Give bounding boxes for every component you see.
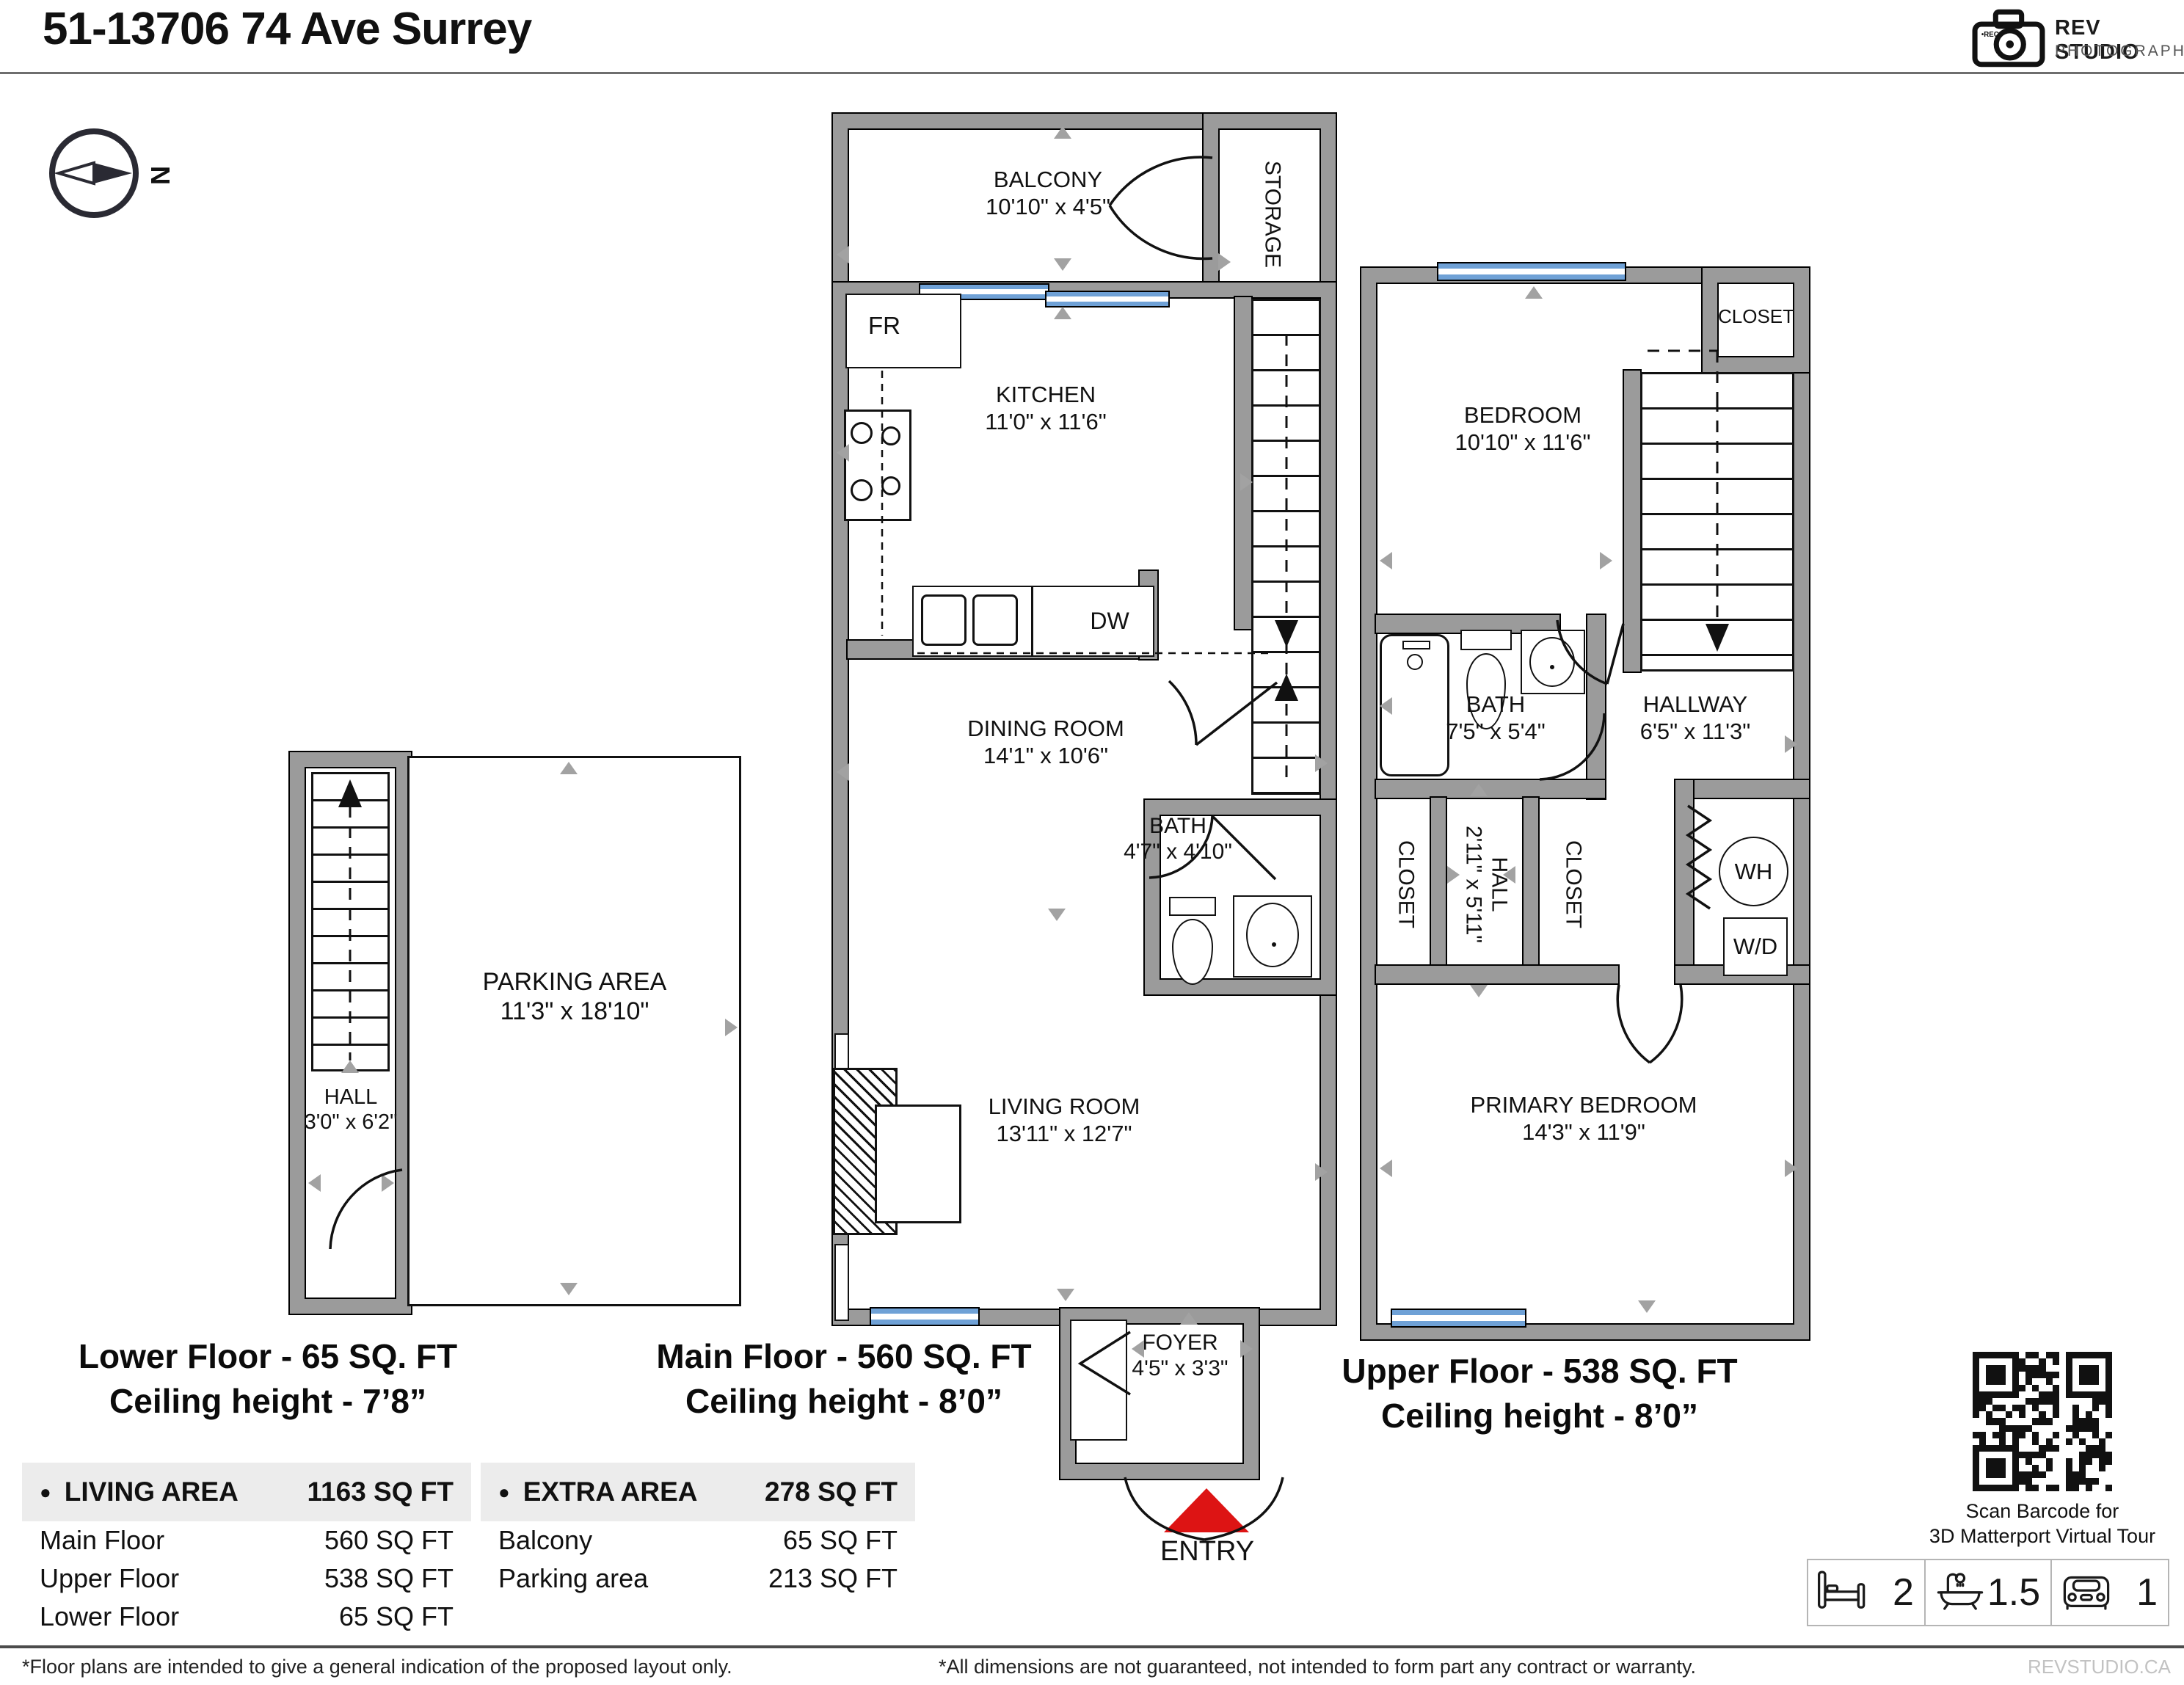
kitchen-label: KITCHEN11'0" x 11'6" — [985, 382, 1106, 435]
table-row: Main Floor560 SQ FT — [22, 1521, 471, 1560]
table-row: Upper Floor538 SQ FT — [22, 1560, 471, 1598]
fridge — [845, 294, 961, 368]
upper-bath-label: BATH7'5" x 5'4" — [1446, 691, 1546, 745]
compass-icon — [45, 125, 148, 228]
table-row: Parking area213 SQ FT — [481, 1560, 915, 1598]
bullet-icon: ● — [498, 1481, 510, 1504]
closet-divider-wall — [1524, 798, 1538, 970]
floorplan-flyer: 51-13706 74 Ave Surrey •REC REV STUDIO P… — [0, 0, 2184, 1685]
page-title: 51-13706 74 Ave Surrey — [43, 3, 531, 55]
living-room-label: LIVING ROOM13'11" x 12'7" — [989, 1093, 1140, 1147]
balcony-window-2 — [1045, 291, 1170, 307]
wall-opening — [834, 1244, 849, 1321]
water-heater: WH — [1719, 837, 1788, 906]
closet-divider-wall — [1431, 798, 1446, 970]
dining-room-label: DINING ROOM14'1" x 10'6" — [967, 716, 1124, 769]
foyer-closet — [1070, 1320, 1127, 1441]
sink-basin — [972, 594, 1018, 646]
camera-logo-icon: •REC — [1970, 7, 2047, 73]
bath-right-wall — [1587, 615, 1605, 798]
utility-left-wall — [1675, 780, 1693, 983]
table-row: Balcony65 SQ FT — [481, 1521, 915, 1560]
utility-top-wall — [1675, 780, 1809, 798]
bullet-icon: ● — [40, 1481, 51, 1504]
parking-area-room — [407, 756, 741, 1306]
bedroom-label: BEDROOM10'10" x 11'6" — [1455, 402, 1591, 456]
footer-disclaimer-center: *All dimensions are not guaranteed, not … — [939, 1656, 1696, 1678]
parking-area-label: PARKING AREA11'3" x 18'10" — [483, 967, 667, 1026]
hallway-label: HALLWAY6'5" x 11'3" — [1640, 691, 1750, 745]
table-row: Lower Floor65 SQ FT — [22, 1598, 471, 1636]
bedroom-window — [1437, 262, 1626, 281]
foyer-label: FOYER4'5" x 3'3" — [1132, 1330, 1228, 1382]
fireplace-box — [875, 1104, 961, 1223]
footer-divider — [0, 1645, 2184, 1648]
upper-hall-label: HALL2'11" x 5'11" — [1461, 826, 1512, 943]
upper-stair-wall — [1624, 371, 1640, 672]
fridge-label: FR — [868, 312, 900, 341]
parking-stat: 1 — [2050, 1560, 2168, 1625]
upper-floor-caption: Upper Floor - 538 SQ. FTCeiling height -… — [1342, 1349, 1737, 1438]
bath-icon — [1933, 1568, 1987, 1617]
upper-bath-sink — [1521, 630, 1585, 694]
entry-label: ENTRY — [1160, 1535, 1254, 1568]
main-floor-caption: Main Floor - 560 SQ. FTCeiling height - … — [656, 1334, 1031, 1423]
svg-text:•REC: •REC — [1981, 31, 1999, 39]
lower-staircase — [311, 772, 390, 1071]
sink-basin — [921, 594, 967, 646]
stove — [844, 410, 911, 521]
bath-sink — [1233, 895, 1312, 978]
stats-strip: 2 1.5 — [1807, 1559, 2169, 1626]
car-icon — [2059, 1568, 2114, 1617]
lower-hall-label: HALL3'0" x 6'2" — [305, 1085, 398, 1135]
toilet-tank — [1169, 897, 1216, 916]
main-bath-label: BATH4'7" x 4'10" — [1124, 813, 1232, 865]
footer-website: REVSTUDIO.CA — [2028, 1656, 2171, 1678]
qr-caption: Scan Barcode for3D Matterport Virtual To… — [1929, 1499, 2155, 1548]
dishwasher-label: DW — [1090, 608, 1129, 636]
upper-closet-right-label: CLOSET — [1560, 840, 1586, 928]
living-area-table: ● LIVING AREA 1163 SQ FT Main Floor560 S… — [22, 1463, 471, 1636]
qr-code — [1973, 1352, 2112, 1491]
footer-disclaimer-left: *Floor plans are intended to give a gene… — [22, 1656, 732, 1678]
entry-marker — [1164, 1488, 1249, 1532]
baths-stat: 1.5 — [1924, 1560, 2050, 1625]
balcony-label: BALCONY10'10" x 4'5" — [986, 167, 1110, 220]
primary-bedroom-window — [1391, 1309, 1526, 1328]
primary-bedroom-label: PRIMARY BEDROOM14'3" x 11'9" — [1471, 1092, 1697, 1146]
bed-icon — [1816, 1568, 1870, 1617]
upper-closet-left-label: CLOSET — [1393, 840, 1419, 928]
lower-floor-caption: Lower Floor - 65 SQ. FTCeiling height - … — [79, 1334, 457, 1423]
living-area-header: ● LIVING AREA 1163 SQ FT — [22, 1463, 471, 1521]
bath-bottom-wall — [1376, 780, 1605, 798]
upper-staircase — [1640, 372, 1794, 672]
upper-toilet-tank — [1460, 630, 1512, 650]
living-room-window — [870, 1307, 980, 1326]
extra-area-table: ● EXTRA AREA 278 SQ FT Balcony65 SQ FT P… — [481, 1463, 915, 1598]
storage-label: STORAGE — [1259, 161, 1285, 268]
upper-closet-top-label: CLOSET — [1718, 305, 1794, 328]
extra-area-header: ● EXTRA AREA 278 SQ FT — [481, 1463, 915, 1521]
compass-north-label: N — [145, 166, 175, 185]
header-divider — [0, 72, 2184, 74]
washer-dryer: W/D — [1723, 917, 1788, 976]
stair-wall — [1235, 297, 1251, 629]
logo-subtitle: PHOTOGRAPHY — [2055, 43, 2184, 60]
beds-stat: 2 — [1808, 1560, 1924, 1625]
closets-bottom-wall — [1376, 966, 1618, 983]
main-staircase — [1251, 299, 1321, 795]
